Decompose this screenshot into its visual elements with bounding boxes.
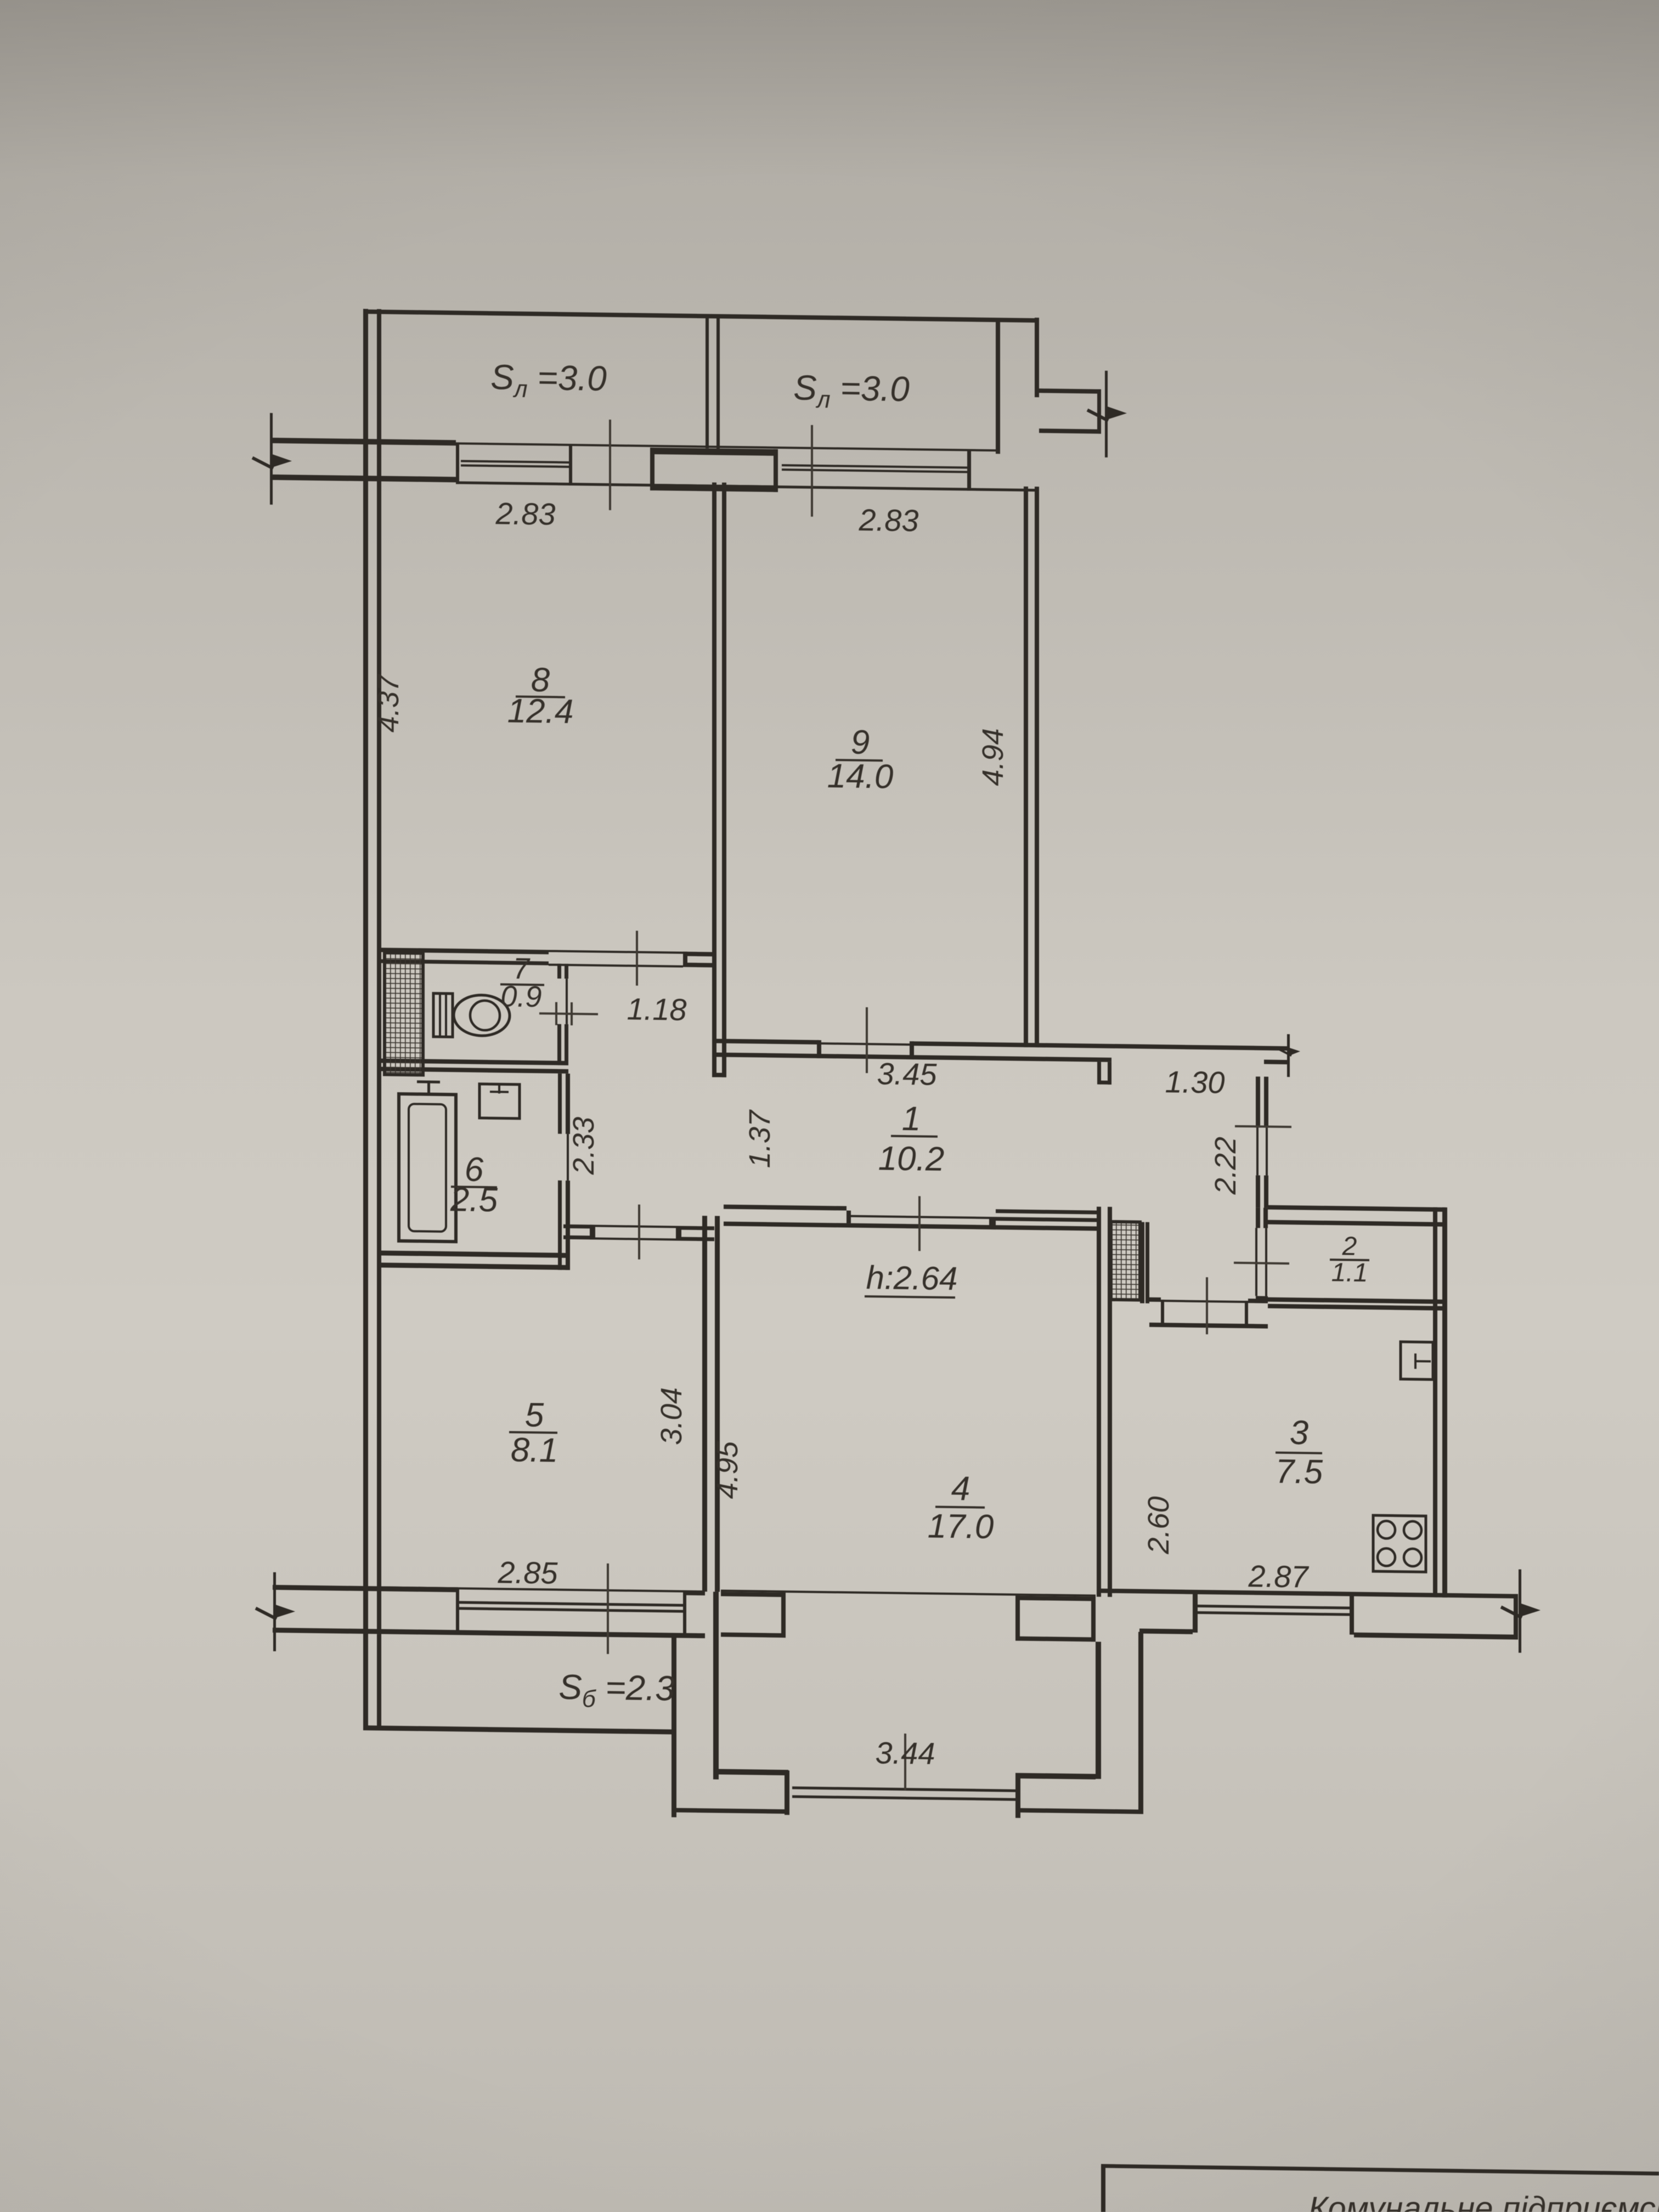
svg-text:5: 5 xyxy=(525,1396,544,1434)
svg-text:3: 3 xyxy=(1290,1414,1308,1452)
svg-text:2.33: 2.33 xyxy=(567,1116,600,1175)
svg-text:4: 4 xyxy=(951,1470,970,1508)
svg-text:2.87: 2.87 xyxy=(1248,1559,1310,1594)
svg-text:9: 9 xyxy=(851,724,870,761)
svg-text:1.30: 1.30 xyxy=(1165,1064,1225,1099)
svg-text:14.0: 14.0 xyxy=(827,757,894,796)
svg-text:3.44: 3.44 xyxy=(876,1735,935,1770)
svg-text:Sб =2.3: Sб =2.3 xyxy=(558,1667,675,1714)
svg-text:1: 1 xyxy=(902,1100,921,1138)
svg-text:7.5: 7.5 xyxy=(1276,1453,1323,1491)
svg-text:Комунальне підприємство: Комунальне підприємство xyxy=(1308,2190,1659,2212)
svg-text:1.18: 1.18 xyxy=(627,991,687,1026)
svg-text:17.0: 17.0 xyxy=(928,1507,994,1546)
svg-text:4.95: 4.95 xyxy=(711,1441,744,1499)
svg-text:3.04: 3.04 xyxy=(655,1387,688,1445)
svg-text:2.22: 2.22 xyxy=(1209,1137,1242,1195)
svg-text:Sл =3.0: Sл =3.0 xyxy=(490,357,607,404)
svg-text:2.60: 2.60 xyxy=(1142,1496,1175,1555)
svg-text:12.4: 12.4 xyxy=(507,692,574,731)
svg-text:4.94: 4.94 xyxy=(977,728,1009,786)
svg-text:Sл =3.0: Sл =3.0 xyxy=(793,368,910,414)
svg-text:2.5: 2.5 xyxy=(450,1181,498,1219)
svg-text:h:2.64: h:2.64 xyxy=(866,1259,958,1297)
svg-text:1.1: 1.1 xyxy=(1331,1258,1368,1288)
svg-text:2.83: 2.83 xyxy=(495,496,556,531)
svg-text:2.85: 2.85 xyxy=(498,1555,558,1590)
svg-text:3.45: 3.45 xyxy=(877,1056,938,1091)
svg-text:4.37: 4.37 xyxy=(372,674,405,733)
svg-text:0.9: 0.9 xyxy=(500,980,541,1013)
svg-text:10.2: 10.2 xyxy=(878,1139,945,1178)
svg-text:1.37: 1.37 xyxy=(743,1109,776,1169)
svg-text:2: 2 xyxy=(1342,1232,1357,1261)
svg-text:8.1: 8.1 xyxy=(511,1431,558,1470)
svg-text:2.83: 2.83 xyxy=(859,503,919,538)
